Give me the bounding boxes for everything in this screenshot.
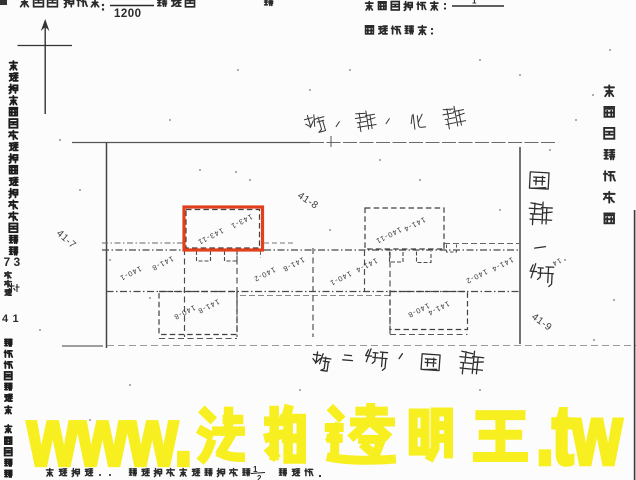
svg-text:1: 1 [13,313,19,325]
svg-text:2: 2 [257,474,262,480]
svg-text:www.: www. [27,392,192,480]
svg-text:.tw: .tw [536,389,622,480]
svg-text:4: 4 [2,313,9,325]
svg-text:7 3: 7 3 [4,255,21,269]
svg-text:1200: 1200 [114,8,142,20]
svg-text:1: 1 [472,0,477,6]
